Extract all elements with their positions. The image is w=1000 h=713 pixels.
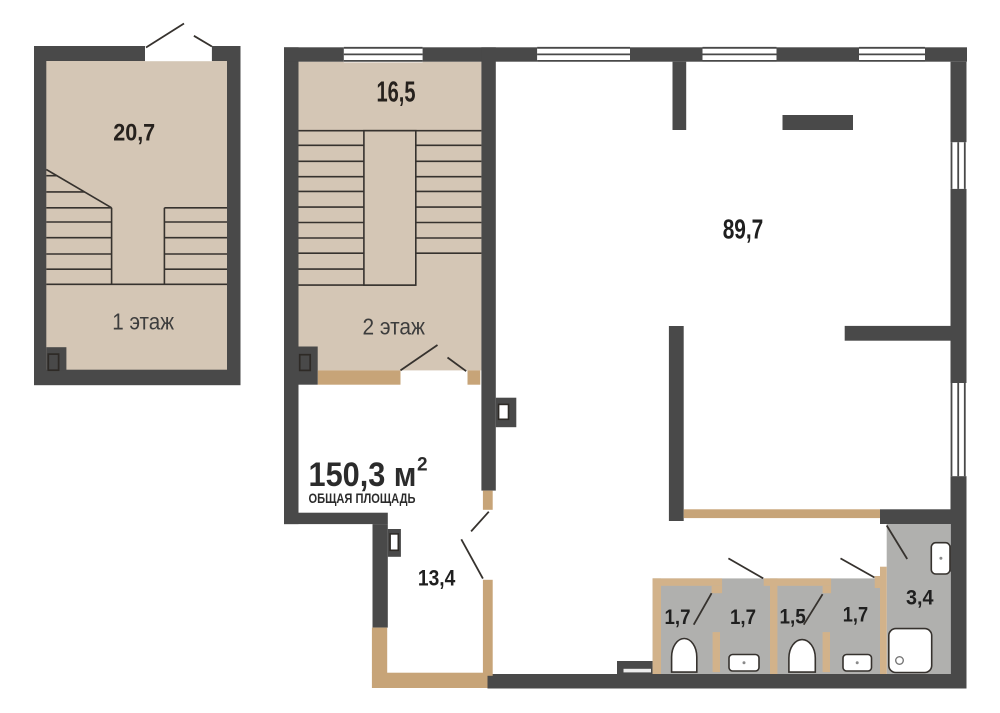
svg-text:89,7: 89,7 bbox=[723, 213, 764, 244]
svg-text:3,4: 3,4 bbox=[906, 587, 934, 610]
svg-text:150,3 м: 150,3 м bbox=[309, 456, 417, 494]
svg-text:16,5: 16,5 bbox=[377, 77, 416, 109]
svg-text:2: 2 bbox=[417, 454, 428, 475]
svg-text:1,7: 1,7 bbox=[843, 603, 868, 626]
svg-text:13,4: 13,4 bbox=[418, 566, 456, 591]
svg-text:1,7: 1,7 bbox=[730, 606, 756, 629]
svg-text:20,7: 20,7 bbox=[113, 120, 155, 147]
svg-text:ОБЩАЯ ПЛОЩАДЬ: ОБЩАЯ ПЛОЩАДЬ bbox=[309, 490, 416, 506]
svg-text:1,5: 1,5 bbox=[780, 606, 807, 629]
svg-text:2 этаж: 2 этаж bbox=[363, 314, 426, 340]
svg-text:1 этаж: 1 этаж bbox=[112, 309, 174, 335]
svg-text:1,7: 1,7 bbox=[665, 606, 691, 629]
